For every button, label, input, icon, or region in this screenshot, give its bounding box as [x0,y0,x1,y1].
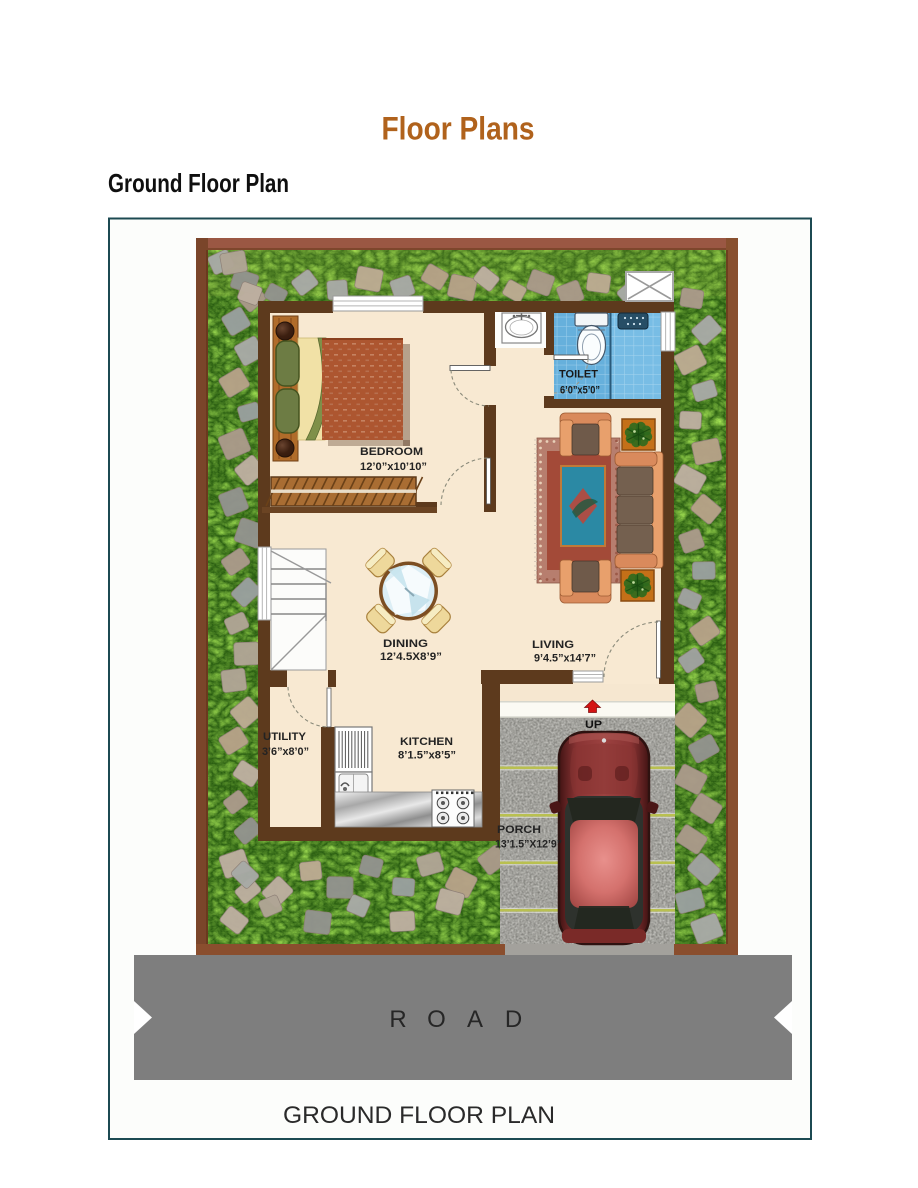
svg-text:KITCHEN: KITCHEN [400,736,453,748]
svg-text:12’4.5X8’9”: 12’4.5X8’9” [380,651,442,663]
svg-text:UP: UP [585,719,602,731]
svg-text:8’1.5”x8’5”: 8’1.5”x8’5” [398,750,456,762]
svg-text:D: D [505,1006,522,1033]
svg-text:TOILET: TOILET [559,369,598,381]
svg-text:DINING: DINING [383,638,428,650]
svg-text:BEDROOM: BEDROOM [360,446,423,458]
svg-text:6’0”x5’0”: 6’0”x5’0” [560,385,600,397]
svg-text:LIVING: LIVING [532,639,574,651]
svg-text:PORCH: PORCH [497,824,541,836]
svg-text:UTILITY: UTILITY [263,731,307,743]
svg-text:O: O [427,1006,446,1033]
svg-text:13’1.5”X12’9”: 13’1.5”X12’9” [495,839,562,851]
svg-text:A: A [467,1006,483,1033]
svg-text:GROUND FLOOR PLAN: GROUND FLOOR PLAN [283,1102,555,1129]
svg-text:Ground Floor Plan: Ground Floor Plan [108,168,289,198]
svg-text:12’0”x10’10”: 12’0”x10’10” [360,461,427,473]
svg-text:Floor Plans: Floor Plans [382,111,535,147]
svg-text:9’4.5”x14’7”: 9’4.5”x14’7” [534,653,596,665]
svg-text:R: R [389,1006,406,1033]
svg-text:3’6”x8’0”: 3’6”x8’0” [262,746,309,758]
